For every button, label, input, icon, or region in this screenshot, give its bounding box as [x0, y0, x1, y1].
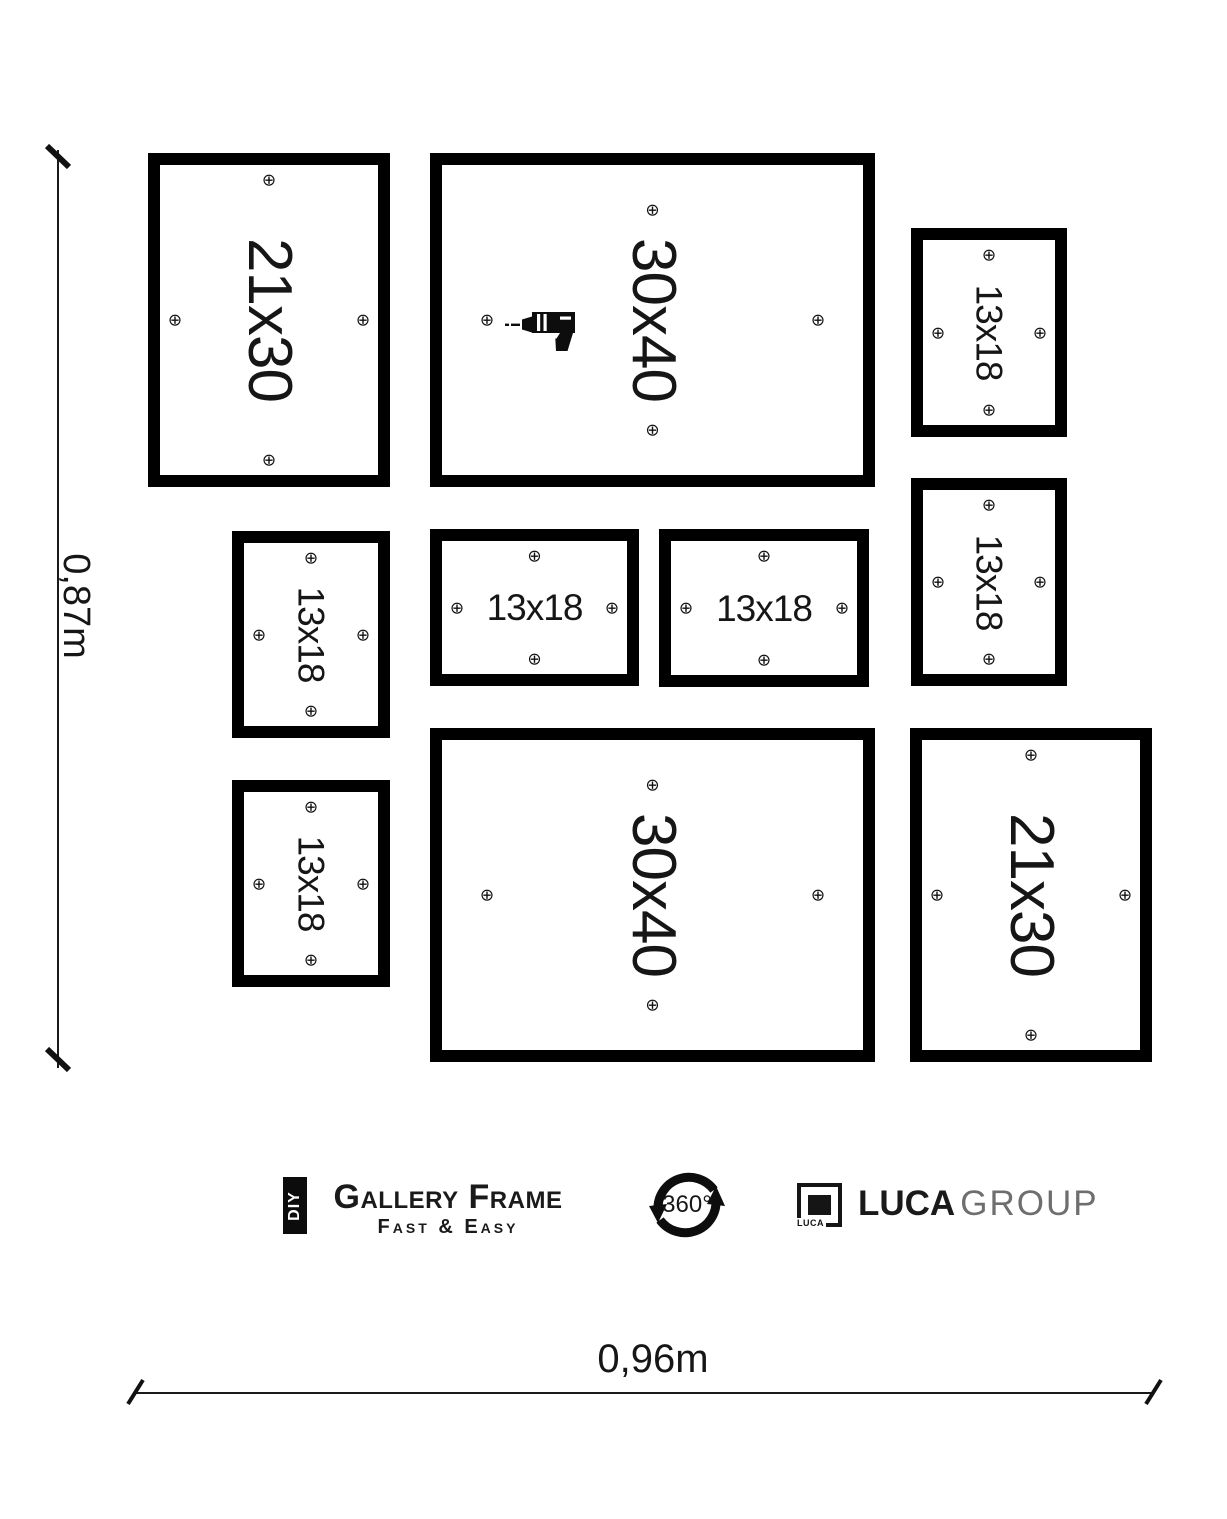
screw-hole-icon: ⊕: [931, 574, 945, 591]
frame-13x18-top-right: 13x18⊕⊕⊕⊕: [911, 228, 1067, 437]
screw-hole-icon: ⊕: [1024, 1027, 1038, 1044]
screw-hole-icon: ⊕: [1033, 574, 1047, 591]
luca-logo-small-text: LUCA: [797, 1218, 826, 1229]
screw-hole-icon: ⊕: [982, 497, 996, 514]
frame-13x18-bottom-left: 13x18⊕⊕⊕⊕: [232, 780, 390, 987]
brand-block: Gallery Frame Fast & Easy: [322, 1180, 574, 1237]
frame-size-label: 30x40: [442, 740, 863, 1050]
screw-hole-icon: ⊕: [356, 875, 370, 892]
frame-size-label: 30x40: [442, 165, 863, 475]
gallery-frame-layout-poster: 0,87m 0,96m 21x30⊕⊕⊕⊕30x40⊕⊕⊕⊕ 13x18⊕⊕⊕⊕…: [0, 0, 1227, 1519]
screw-hole-icon: ⊕: [605, 599, 619, 616]
frame-13x18-mid-center-2: 13x18⊕⊕⊕⊕: [659, 529, 869, 687]
frame-size-label: 13x18: [442, 541, 627, 674]
drill-icon: [505, 311, 585, 351]
brand-title: Gallery Frame: [322, 1180, 574, 1214]
screw-hole-icon: ⊕: [1033, 324, 1047, 341]
luca-brand-suffix-text: GROUP: [960, 1184, 1098, 1223]
frame-size-label: 13x18: [671, 541, 857, 675]
screw-hole-icon: ⊕: [982, 651, 996, 668]
frame-size-label: 21x30: [160, 165, 378, 475]
wall-width-dimension-label: 0,96m: [597, 1339, 708, 1379]
rotation-360-label: 360°: [645, 1163, 729, 1247]
luca-brand-text: LUCA: [858, 1184, 955, 1223]
luca-logo-square-icon: [808, 1195, 831, 1215]
frame-21x30-top-left: 21x30⊕⊕⊕⊕: [148, 153, 390, 487]
screw-hole-icon: ⊕: [356, 312, 370, 329]
frame-30x40-top-center: 30x40⊕⊕⊕⊕: [430, 153, 875, 487]
horizontal-dimension-tick-left: [128, 1380, 143, 1404]
screw-hole-icon: ⊕: [252, 626, 266, 643]
screw-hole-icon: ⊕: [1024, 747, 1038, 764]
screw-hole-icon: ⊕: [931, 324, 945, 341]
frame-size-label: 21x30: [922, 740, 1140, 1050]
screw-hole-icon: ⊕: [262, 172, 276, 189]
screw-hole-icon: ⊕: [679, 600, 693, 617]
screw-hole-icon: ⊕: [304, 550, 318, 567]
screw-hole-icon: ⊕: [480, 312, 494, 329]
screw-hole-icon: ⊕: [168, 312, 182, 329]
screw-hole-icon: ⊕: [757, 652, 771, 669]
frame-13x18-mid-center-1: 13x18⊕⊕⊕⊕: [430, 529, 639, 686]
screw-hole-icon: ⊕: [757, 548, 771, 565]
screw-hole-icon: ⊕: [811, 887, 825, 904]
diy-logo: DIY: [283, 1177, 307, 1234]
screw-hole-icon: ⊕: [930, 887, 944, 904]
wall-height-dimension-label: 0,87m: [57, 553, 95, 659]
screw-hole-icon: ⊕: [645, 997, 659, 1014]
luca-logo: LUCA: [797, 1183, 842, 1227]
frame-size-label: 13x18: [244, 543, 378, 726]
frame-size-label: 13x18: [923, 240, 1055, 425]
screw-hole-icon: ⊕: [645, 422, 659, 439]
screw-hole-icon: ⊕: [356, 626, 370, 643]
brand-subtitle: Fast & Easy: [322, 1217, 574, 1237]
horizontal-dimension-tick-right: [1146, 1380, 1161, 1404]
screw-hole-icon: ⊕: [450, 599, 464, 616]
screw-hole-icon: ⊕: [304, 703, 318, 720]
frame-size-label: 13x18: [244, 792, 378, 975]
vertical-dimension-tick-top: [47, 146, 69, 167]
screw-hole-icon: ⊕: [835, 600, 849, 617]
screw-hole-icon: ⊕: [304, 952, 318, 969]
frame-13x18-mid-left: 13x18⊕⊕⊕⊕: [232, 531, 390, 738]
screw-hole-icon: ⊕: [982, 247, 996, 264]
frame-21x30-bottom-right: 21x30⊕⊕⊕⊕: [910, 728, 1152, 1062]
screw-hole-icon: ⊕: [645, 777, 659, 794]
rotation-360-badge: 360°: [645, 1163, 729, 1247]
screw-hole-icon: ⊕: [982, 402, 996, 419]
diy-logo-text: DIY: [287, 1191, 303, 1221]
frame-13x18-mid-right: 13x18⊕⊕⊕⊕: [911, 478, 1067, 686]
screw-hole-icon: ⊕: [480, 887, 494, 904]
screw-hole-icon: ⊕: [304, 799, 318, 816]
vertical-dimension-tick-bottom: [47, 1049, 69, 1070]
screw-hole-icon: ⊕: [252, 875, 266, 892]
screw-hole-icon: ⊕: [645, 202, 659, 219]
frame-size-label: 13x18: [923, 490, 1055, 674]
luca-wordmark: LUCAGROUP: [858, 1186, 1099, 1221]
screw-hole-icon: ⊕: [527, 548, 541, 565]
screw-hole-icon: ⊕: [527, 651, 541, 668]
screw-hole-icon: ⊕: [1118, 887, 1132, 904]
screw-hole-icon: ⊕: [811, 312, 825, 329]
screw-hole-icon: ⊕: [262, 452, 276, 469]
frame-30x40-bottom-center: 30x40⊕⊕⊕⊕: [430, 728, 875, 1062]
